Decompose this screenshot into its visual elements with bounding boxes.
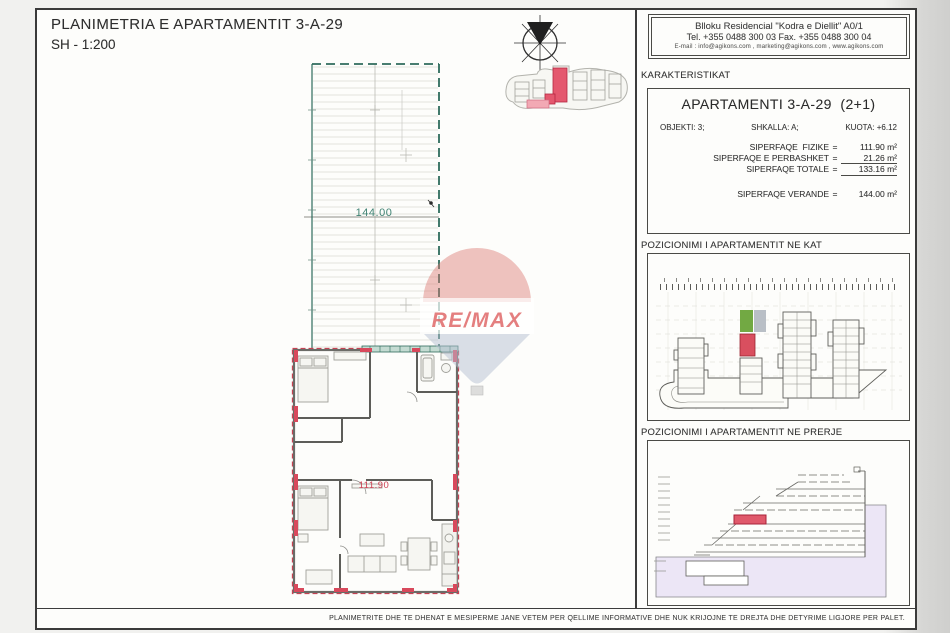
residence-name: Blloku Residencial "Kodra e Diellit" A0/… — [652, 21, 906, 32]
floor-position-drawing — [648, 254, 909, 420]
kat-highlight-red — [740, 334, 755, 356]
info-panel: Blloku Residencial "Kodra e Diellit" A0/… — [639, 10, 917, 608]
area-row-totale: SIPERFAQE TOTALE = 133.16 m² — [648, 164, 909, 176]
kat-highlight-green — [740, 310, 753, 332]
phone-fax-line: Tel. +355 0488 300 03 Fax. +355 0488 300… — [652, 32, 906, 43]
objekti-value: OBJEKTI: 3; — [660, 123, 704, 132]
area-table: SIPERFAQE FIZIKE = 111.90 m² SIPERFAQE E… — [648, 142, 909, 199]
kat-highlight-gray — [754, 310, 766, 332]
section-floor-lines — [696, 475, 865, 552]
email-line: E-mail : info@agikons.com , marketing@ag… — [652, 43, 906, 52]
scanned-document-canvas: PLANIMETRIA E APARTAMENTIT 3-A-29 SH - 1… — [0, 0, 950, 633]
panel-divider — [635, 10, 637, 608]
veranda-terrace-plan: 144.00 — [304, 64, 439, 349]
section-title-prerje: POZICIONIMI I APARTAMENTIT NE PRERJE — [641, 427, 842, 438]
floor-plan-drawing: 144.00 — [282, 50, 562, 610]
scale-label: SH - 1:200 — [51, 37, 116, 52]
contact-header-box: Blloku Residencial "Kodra e Diellit" A0/… — [648, 14, 910, 59]
section-title-kat: POZICIONIMI I APARTAMENTIT NE KAT — [641, 240, 822, 251]
shkalla-value: SHKALLA: A; — [751, 123, 799, 132]
prerje-highlight-red — [734, 515, 766, 524]
apartment-area-label: 111.90 — [359, 480, 390, 491]
kat-drawing-box — [647, 253, 910, 421]
kuota-value: KUOTA: +6.12 — [845, 123, 897, 132]
disclaimer-strip: PLANIMETRITE DHE TE DHENAT E MESIPERME J… — [37, 608, 915, 628]
section-ground — [656, 505, 886, 597]
document-page: PLANIMETRIA E APARTAMENTIT 3-A-29 SH - 1… — [35, 8, 917, 630]
section-title-karakteristikat: KARAKTERISTIKAT — [641, 70, 730, 81]
page-title: PLANIMETRIA E APARTAMENTIT 3-A-29 — [51, 16, 343, 33]
apartment-title: APARTAMENTI 3-A-29 (2+1) — [648, 96, 909, 112]
characteristics-box: APARTAMENTI 3-A-29 (2+1) OBJEKTI: 3; SHK… — [647, 88, 910, 234]
area-row-perbashket: SIPERFAQE E PERBASHKET = 21.26 m² — [648, 153, 909, 165]
area-row-fizike: SIPERFAQE FIZIKE = 111.90 m² — [648, 142, 909, 153]
veranda-area-label: 144.00 — [356, 207, 393, 219]
remax-watermark-text: RE/MAX — [432, 309, 523, 332]
area-row-verande: SIPERFAQE VERANDE = 144.00 m² — [648, 189, 909, 200]
prerje-drawing-box — [647, 440, 910, 606]
apartment-floor-plan: 111.90 — [293, 346, 459, 594]
section-position-drawing — [648, 441, 909, 605]
disclaimer-text: PLANIMETRITE DHE TE DHENAT E MESIPERME J… — [329, 615, 905, 622]
